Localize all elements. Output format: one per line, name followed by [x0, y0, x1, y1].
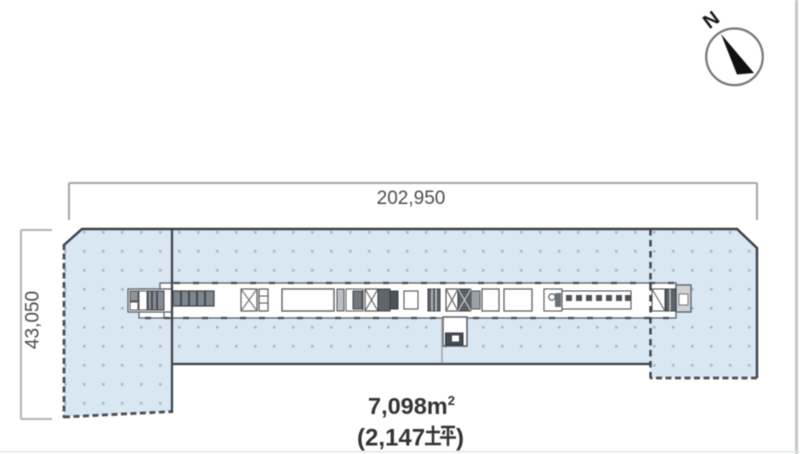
svg-text:(2,147: (2,147	[357, 425, 425, 452]
svg-text:202,950: 202,950	[377, 188, 446, 209]
svg-text:): )	[456, 425, 464, 452]
svg-text:43,050: 43,050	[23, 291, 44, 349]
svg-text:7,098m2: 7,098m2	[368, 393, 455, 419]
